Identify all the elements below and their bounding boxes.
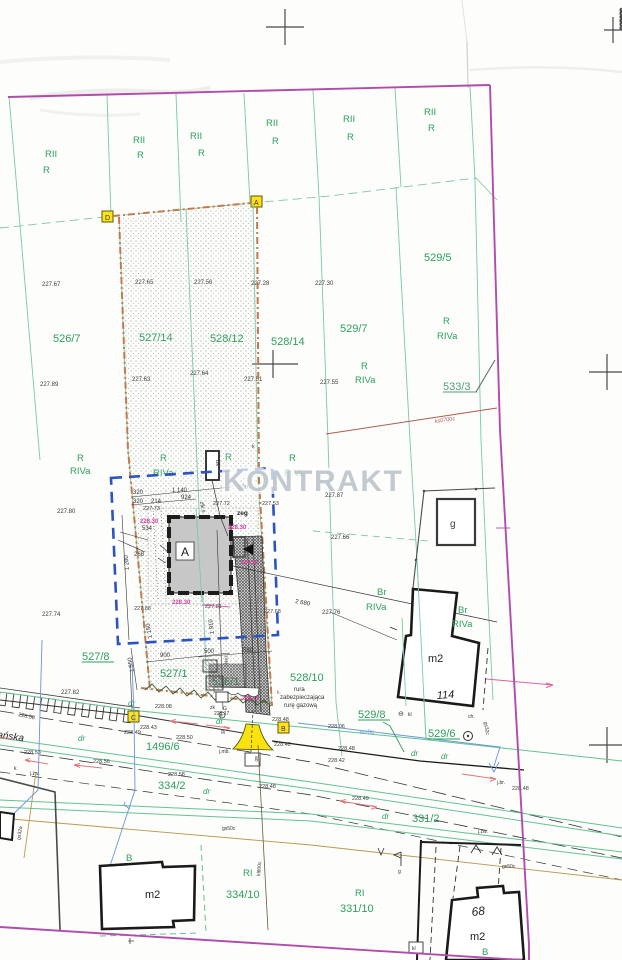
svg-text:j.br.: j.br. <box>496 780 505 786</box>
svg-text:529/6: 529/6 <box>428 728 456 740</box>
svg-text:RII: RII <box>343 114 355 125</box>
svg-text:900: 900 <box>160 653 171 659</box>
svg-text:227.88: 227.88 <box>134 606 151 612</box>
svg-text:1496/6: 1496/6 <box>146 741 180 753</box>
svg-text:m2: m2 <box>470 931 485 943</box>
svg-text:g: g <box>450 519 456 530</box>
svg-text:zk: zk <box>210 705 216 711</box>
svg-text:dr: dr <box>382 812 389 821</box>
svg-text:dr: dr <box>78 734 85 743</box>
svg-text:228.42: 228.42 <box>274 742 291 748</box>
svg-text:A: A <box>181 545 189 559</box>
svg-text:228.58: 228.58 <box>168 772 185 778</box>
svg-text:m2: m2 <box>428 653 443 665</box>
svg-text:zabezpieczająca: zabezpieczająca <box>280 695 325 701</box>
svg-text:RII: RII <box>190 131 202 142</box>
svg-text:C: C <box>131 715 136 722</box>
svg-text:228.43: 228.43 <box>140 725 157 731</box>
svg-text:227.74: 227.74 <box>42 612 61 618</box>
svg-text:228.56: 228.56 <box>93 759 110 765</box>
svg-text:659850: 659850 <box>618 8 622 30</box>
svg-text:228.08: 228.08 <box>155 704 172 710</box>
svg-text:331/10: 331/10 <box>340 903 374 915</box>
svg-text:529/8: 529/8 <box>358 709 386 721</box>
svg-text:gs50c: gs50c <box>502 864 516 870</box>
svg-text:1 140: 1 140 <box>172 488 188 494</box>
svg-text:227.66: 227.66 <box>331 535 350 541</box>
svg-text:228.30: 228.30 <box>228 525 247 531</box>
svg-text:534: 534 <box>142 526 153 532</box>
svg-text:227.55: 227.55 <box>320 380 339 386</box>
svg-text:227.82: 227.82 <box>61 690 80 696</box>
svg-text:zeg: zeg <box>237 510 248 517</box>
svg-text:RII: RII <box>45 149 57 160</box>
svg-text:R: R <box>289 453 296 464</box>
svg-text:228.53: 228.53 <box>24 750 41 756</box>
svg-text:228.50: 228.50 <box>176 735 193 741</box>
svg-text:kl: kl <box>412 946 416 952</box>
svg-text:529/5: 529/5 <box>424 252 452 264</box>
svg-text:334/2: 334/2 <box>158 780 186 792</box>
svg-text:ao: ao <box>253 756 259 762</box>
svg-text:114: 114 <box>436 689 454 702</box>
svg-text:RII: RII <box>266 118 278 129</box>
svg-text:528/14: 528/14 <box>271 336 305 348</box>
svg-text:RIVa: RIVa <box>437 331 458 342</box>
svg-text:320: 320 <box>133 490 144 496</box>
svg-text:G: G <box>223 706 227 712</box>
svg-text:228.19: 228.19 <box>242 696 259 702</box>
svg-text:dr: dr <box>203 787 210 796</box>
svg-text:227.72: 227.72 <box>213 501 230 507</box>
svg-text:k.: k. <box>277 690 281 696</box>
svg-text:227.53: 227.53 <box>262 501 279 507</box>
svg-text:RI: RI <box>355 888 365 899</box>
svg-text:533/3: 533/3 <box>443 381 471 393</box>
svg-text:228.49: 228.49 <box>124 730 141 736</box>
svg-text:227.30: 227.30 <box>315 281 334 287</box>
svg-text:R: R <box>137 150 144 161</box>
svg-text:RIVa: RIVa <box>355 375 376 386</box>
svg-text:Br: Br <box>377 587 387 598</box>
svg-text:dr: dr <box>441 752 448 761</box>
svg-text:527/8: 527/8 <box>82 651 110 663</box>
svg-text:B: B <box>126 853 132 864</box>
svg-text:334/10: 334/10 <box>226 889 260 901</box>
svg-text:228.42: 228.42 <box>328 758 345 764</box>
svg-text:w≈0c: w≈0c <box>359 730 374 736</box>
svg-text:227.89: 227.89 <box>40 382 59 388</box>
svg-text:228.30: 228.30 <box>172 600 191 606</box>
svg-text:kl: kl <box>408 712 412 718</box>
svg-text:rura: rura <box>294 687 305 693</box>
svg-text:227.73: 227.73 <box>143 506 160 512</box>
svg-text:924: 924 <box>181 495 192 501</box>
svg-text:526/7: 526/7 <box>53 333 81 345</box>
svg-text:j.mb.: j.mb. <box>218 749 230 755</box>
svg-text:R: R <box>428 123 435 134</box>
svg-text:e: e <box>220 713 223 719</box>
svg-text:⊖: ⊖ <box>398 711 404 718</box>
svg-text:228.48: 228.48 <box>338 746 355 752</box>
svg-text:527/1: 527/1 <box>160 668 188 680</box>
svg-text:227.80: 227.80 <box>57 509 76 515</box>
svg-text:R: R <box>77 453 84 464</box>
svg-text:ch.: ch. <box>468 714 475 720</box>
svg-text:214: 214 <box>151 499 162 505</box>
svg-text:RIVa: RIVa <box>366 602 387 613</box>
svg-text:RIVa: RIVa <box>452 619 473 630</box>
svg-text:529/7: 529/7 <box>340 323 368 335</box>
svg-text:B: B <box>482 947 488 958</box>
svg-text:RII: RII <box>133 135 145 146</box>
svg-text:228.30: 228.30 <box>140 519 159 525</box>
svg-text:227.67: 227.67 <box>42 282 61 288</box>
svg-text:320: 320 <box>133 499 144 505</box>
svg-text:228.48: 228.48 <box>259 784 276 790</box>
svg-text:68: 68 <box>471 904 486 919</box>
svg-text:j.żw.: j.żw. <box>477 829 488 835</box>
svg-text:R: R <box>272 136 279 147</box>
svg-text:Nez: Nez <box>223 654 230 664</box>
svg-text:gs50c: gs50c <box>222 826 236 832</box>
svg-text:RII: RII <box>424 107 436 118</box>
svg-text:dr: dr <box>411 749 418 758</box>
svg-text:KONTRAKT: KONTRAKT <box>223 465 403 498</box>
svg-text:228.30: 228.30 <box>241 560 258 566</box>
svg-text:g: g <box>398 869 401 875</box>
svg-text:R: R <box>347 132 354 143</box>
svg-text:228.06: 228.06 <box>328 724 345 730</box>
svg-text:RIVa: RIVa <box>70 466 91 477</box>
svg-text:R: R <box>443 316 450 327</box>
svg-text:RI: RI <box>243 868 253 879</box>
svg-text:R: R <box>198 148 205 159</box>
svg-text:268: 268 <box>134 552 145 558</box>
svg-text:331/2: 331/2 <box>412 813 440 825</box>
svg-text:228.49: 228.49 <box>352 796 369 802</box>
svg-text:528/10: 528/10 <box>290 672 324 684</box>
svg-text:500: 500 <box>204 649 215 655</box>
svg-text:Br: Br <box>458 605 468 616</box>
svg-text:D: D <box>105 215 110 222</box>
svg-text:B: B <box>281 726 286 733</box>
svg-text:R: R <box>361 361 368 372</box>
svg-text:m2: m2 <box>145 889 160 901</box>
svg-text:227.87: 227.87 <box>325 493 344 499</box>
svg-text:R: R <box>43 165 50 176</box>
svg-text:bk: bk <box>214 460 220 467</box>
svg-text:rurę gazową: rurę gazową <box>284 703 318 709</box>
